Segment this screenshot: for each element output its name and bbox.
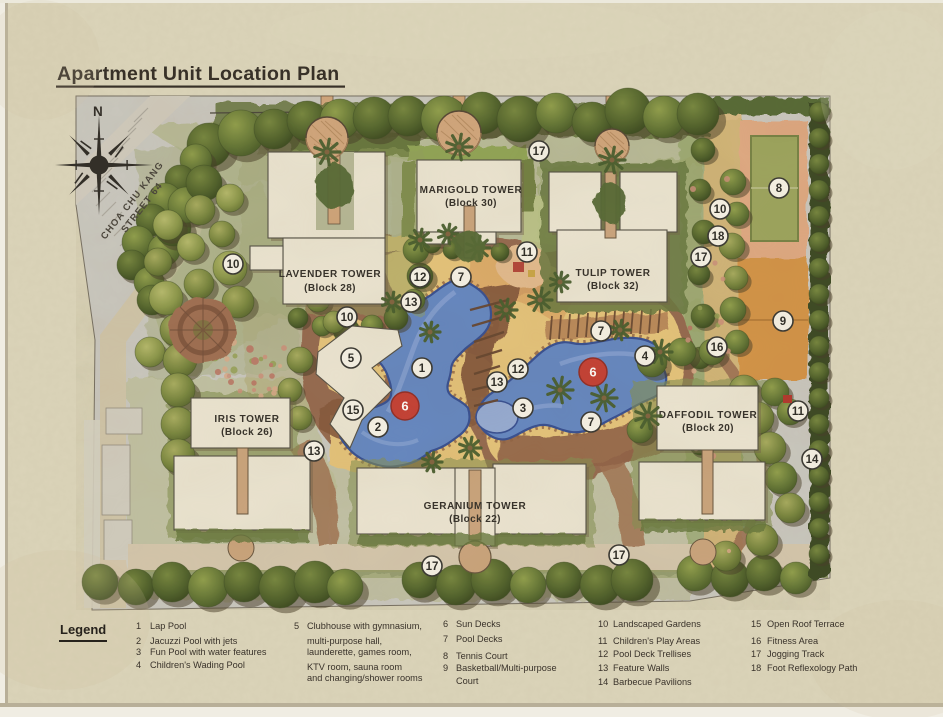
svg-text:and changing/shower rooms: and changing/shower rooms (307, 673, 423, 683)
svg-text:Jogging Track: Jogging Track (767, 649, 825, 659)
svg-text:13: 13 (598, 663, 608, 673)
svg-text:11: 11 (598, 636, 608, 646)
svg-text:Sun Decks: Sun Decks (456, 619, 501, 629)
svg-text:12: 12 (598, 649, 608, 659)
svg-text:9: 9 (443, 663, 448, 673)
svg-text:Foot Reflexology Path: Foot Reflexology Path (767, 663, 857, 673)
svg-text:Legend: Legend (60, 622, 106, 637)
svg-text:6: 6 (443, 619, 448, 629)
svg-text:Children's Wading Pool: Children's Wading Pool (150, 660, 245, 670)
svg-text:5: 5 (294, 621, 299, 631)
svg-text:Fitness Area: Fitness Area (767, 636, 819, 646)
svg-text:2: 2 (136, 636, 141, 646)
svg-text:10: 10 (598, 619, 608, 629)
svg-text:1: 1 (136, 621, 141, 631)
svg-text:Tennis Court: Tennis Court (456, 651, 508, 661)
svg-text:14: 14 (598, 677, 608, 687)
svg-text:Basketball/Multi-purpose: Basketball/Multi-purpose (456, 663, 557, 673)
svg-text:4: 4 (136, 660, 141, 670)
svg-text:KTV room, sauna room: KTV room, sauna room (307, 662, 402, 672)
svg-text:Jacuzzi Pool with jets: Jacuzzi Pool with jets (150, 636, 238, 646)
svg-text:Open Roof Terrace: Open Roof Terrace (767, 619, 844, 629)
svg-text:3: 3 (136, 647, 141, 657)
svg-text:Children's Play Areas: Children's Play Areas (613, 636, 700, 646)
svg-text:Feature Walls: Feature Walls (613, 663, 670, 673)
svg-text:Clubhouse with gymnasium,: Clubhouse with gymnasium, (307, 621, 422, 631)
svg-text:launderette, games room,: launderette, games room, (307, 647, 412, 657)
svg-text:15: 15 (751, 619, 761, 629)
svg-text:Pool Decks: Pool Decks (456, 634, 503, 644)
svg-text:multi-purpose hall,: multi-purpose hall, (307, 636, 382, 646)
svg-text:7: 7 (443, 634, 448, 644)
svg-text:Landscaped Gardens: Landscaped Gardens (613, 619, 701, 629)
svg-text:17: 17 (751, 649, 761, 659)
svg-text:18: 18 (751, 663, 761, 673)
svg-text:Barbecue Pavilions: Barbecue Pavilions (613, 677, 692, 687)
svg-text:8: 8 (443, 651, 448, 661)
svg-text:16: 16 (751, 636, 761, 646)
svg-text:Fun Pool with water features: Fun Pool with water features (150, 647, 267, 657)
svg-text:Court: Court (456, 676, 479, 686)
svg-text:Lap Pool: Lap Pool (150, 621, 186, 631)
svg-text:Pool Deck Trellises: Pool Deck Trellises (613, 649, 692, 659)
